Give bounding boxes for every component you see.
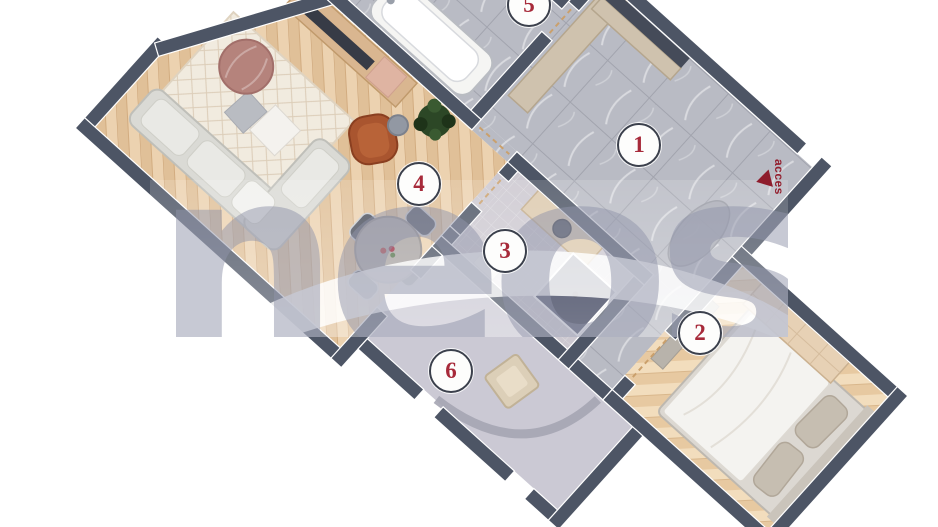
room-label-3: 3 — [483, 229, 527, 273]
room-label-2: 2 — [678, 311, 722, 355]
room-label-6: 6 — [429, 349, 473, 393]
room-label-1: 1 — [617, 123, 661, 167]
access-label: acces — [772, 159, 786, 195]
floor-plan-image: neos 1 2 3 4 5 6 acces — [0, 0, 938, 527]
access-marker: acces — [756, 158, 800, 218]
floor-plan — [0, 0, 938, 527]
access-arrow-icon — [754, 169, 773, 190]
room-label-4: 4 — [397, 162, 441, 206]
